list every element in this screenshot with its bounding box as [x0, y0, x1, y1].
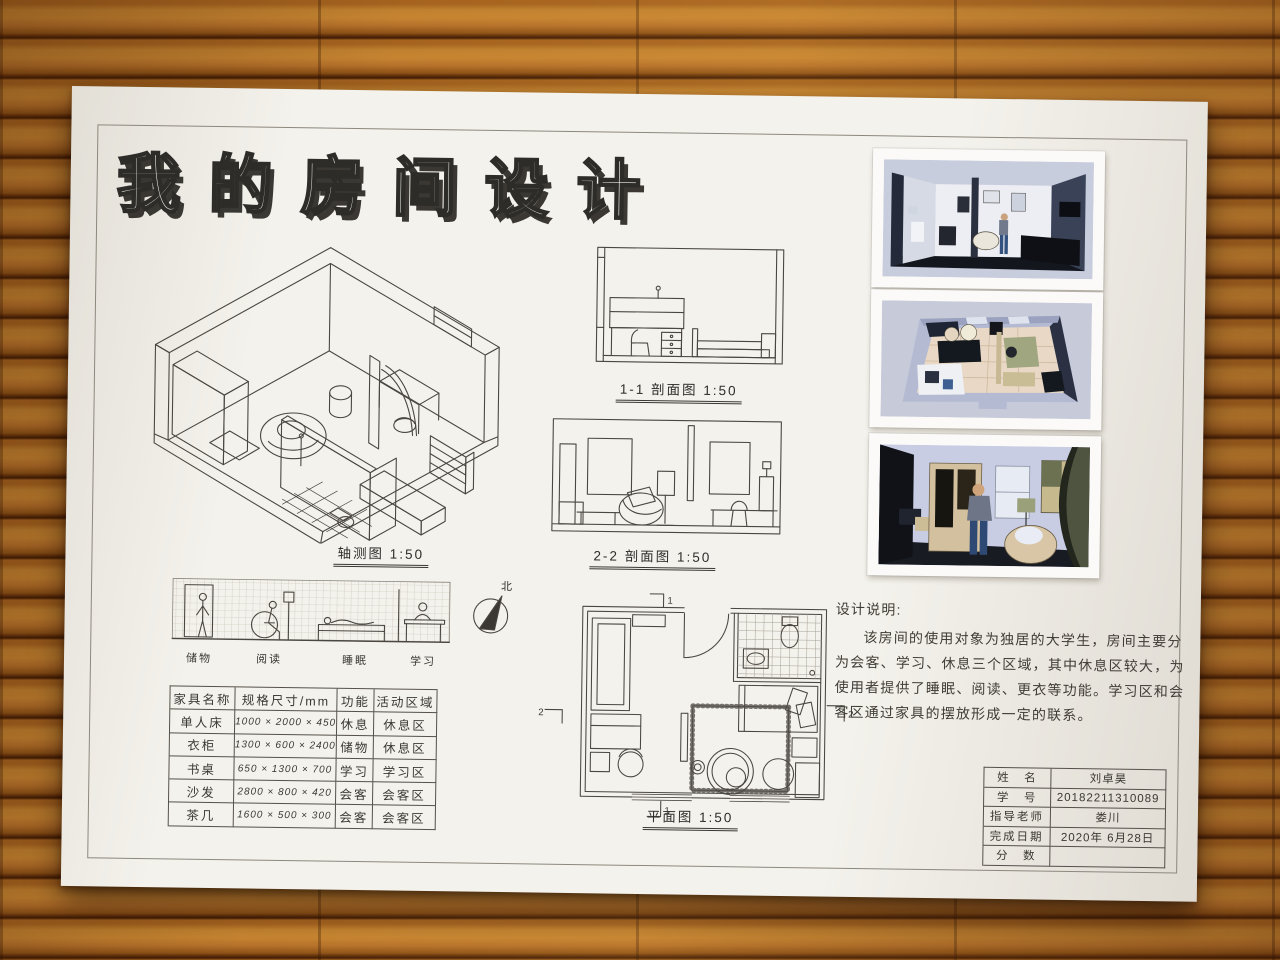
title-block: 姓 名 刘卓昊 学 号 20182211310089 指导老师 娄川 完成日期 …	[982, 767, 1166, 868]
table-cell: 储物	[337, 735, 374, 759]
table-cell: 书桌	[169, 756, 234, 780]
table-cell: 学习	[336, 759, 373, 783]
table-cell: 休息区	[374, 713, 437, 737]
table-cell: 衣柜	[170, 733, 235, 757]
table-cell: 学习区	[373, 759, 436, 783]
table-cell: 650 × 1300 × 700	[234, 757, 336, 782]
floor-plan-drawing: 1 1 2 2	[536, 582, 869, 831]
poster-title: 我的房间设计	[116, 133, 669, 233]
title-block-value-date: 2020年 6月28日	[1050, 827, 1165, 848]
title-block-value-score	[1050, 847, 1165, 868]
table-cell: 2800 × 800 × 420	[234, 781, 336, 806]
elevation-label-reading: 阅读	[256, 651, 282, 667]
furniture-col-header: 活动区域	[374, 689, 437, 713]
table-cell: 休息	[337, 712, 374, 736]
elevation-label-sleeping: 睡眠	[342, 652, 368, 668]
presentation-sheet: 我的房间设计	[61, 86, 1208, 902]
table-cell: 单人床	[170, 710, 235, 734]
section-1-1-label: 1-1 剖面图 1:50	[616, 378, 742, 405]
furniture-table: 家具名称 规格尺寸/mm 功能 活动区域 单人床 1000 × 2000 × 4…	[168, 685, 438, 830]
table-cell: 会客	[336, 782, 373, 806]
render-top-view	[869, 289, 1103, 430]
title-block-label-advisor: 指导老师	[984, 807, 1051, 827]
plan-mark-left: 2	[538, 707, 543, 718]
table-cell: 1300 × 600 × 2400	[235, 734, 337, 759]
north-label: 北	[501, 578, 512, 594]
title-block-value-name: 刘卓昊	[1051, 769, 1166, 790]
title-block-value-student-id: 20182211310089	[1051, 788, 1166, 809]
plan-label: 平面图 1:50	[643, 805, 738, 831]
plan-mark-top: 1	[667, 596, 672, 607]
table-cell: 茶几	[169, 803, 234, 827]
title-block-value-advisor: 娄川	[1051, 808, 1166, 829]
axonometric-drawing	[132, 241, 511, 546]
section-2-2-label: 2-2 剖面图 1:50	[589, 544, 715, 571]
table-cell: 会客区	[373, 806, 436, 830]
furniture-col-header: 规格尺寸/mm	[235, 687, 337, 712]
furniture-col-header: 家具名称	[170, 686, 235, 710]
title-block-label-student-id: 学 号	[984, 787, 1051, 807]
title-block-label-score: 分 数	[983, 846, 1050, 866]
table-cell: 沙发	[169, 780, 234, 804]
section-1-1-drawing	[589, 241, 791, 374]
section-2-2-drawing	[547, 414, 789, 543]
photo-of-design-board: 我的房间设计	[0, 0, 1280, 960]
elevation-label-studying: 学习	[410, 653, 436, 669]
elevation-label-storage: 储物	[186, 650, 212, 666]
table-cell: 1600 × 500 × 300	[234, 804, 336, 829]
title-block-label-name: 姓 名	[984, 768, 1051, 788]
table-cell: 会客	[336, 805, 373, 829]
table-cell: 休息区	[374, 736, 437, 760]
design-notes: 设计说明: 该房间的使用对象为独居的大学生，房间主要分为会客、学习、休息三个区域…	[834, 597, 1188, 729]
elevation-strip-drawing	[168, 574, 454, 650]
table-cell: 会客区	[373, 782, 436, 806]
furniture-col-header: 功能	[337, 689, 374, 713]
design-notes-body: 该房间的使用对象为独居的大学生，房间主要分为会客、学习、休息三个区域，其中休息区…	[834, 625, 1187, 730]
table-cell: 1000 × 2000 × 450	[235, 711, 337, 736]
design-notes-heading: 设计说明:	[836, 597, 1188, 627]
axon-label: 轴测图 1:50	[333, 542, 428, 568]
render-interior-view	[867, 433, 1101, 578]
title-block-label-date: 完成日期	[983, 826, 1050, 846]
render-section-perspective	[871, 148, 1105, 290]
